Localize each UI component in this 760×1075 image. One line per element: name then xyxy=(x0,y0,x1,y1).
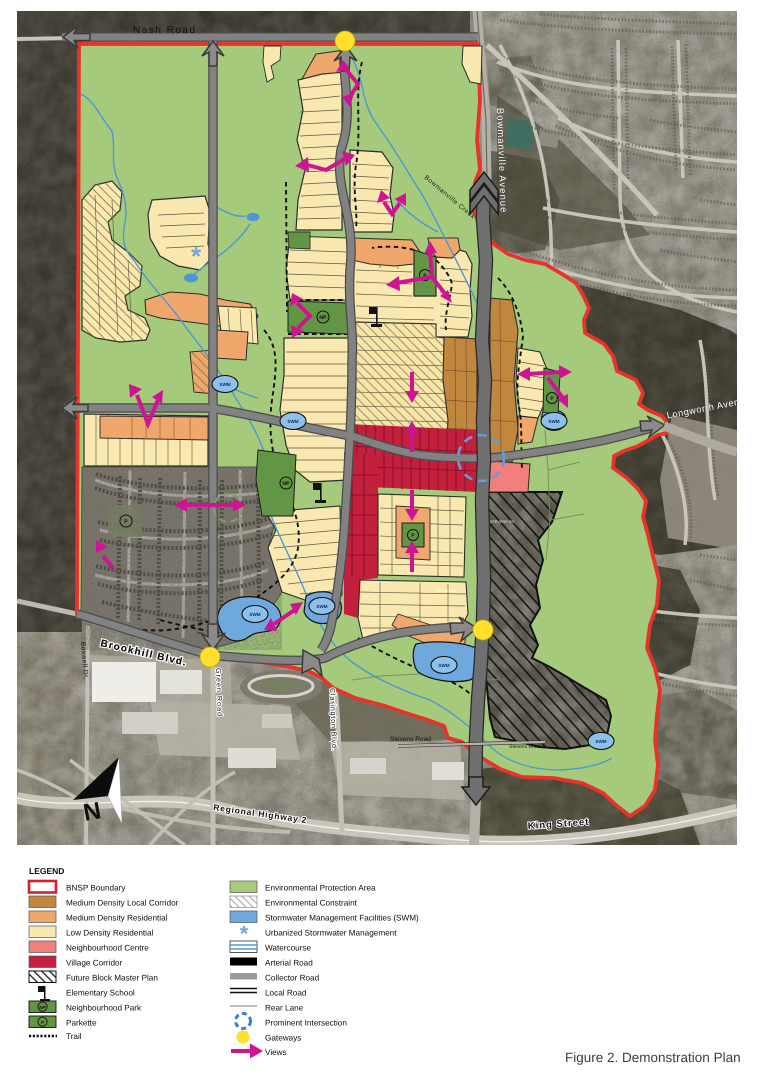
svg-text:Trail: Trail xyxy=(66,1032,82,1041)
svg-text:SWM: SWM xyxy=(287,419,298,424)
svg-text:NP: NP xyxy=(282,481,290,487)
svg-text:Stormwater Management Faciliti: Stormwater Management Facilities (SWM) xyxy=(265,914,419,923)
svg-text:Urbanized Stormwater Managemen: Urbanized Stormwater Management xyxy=(265,929,397,938)
svg-text:Neighbourhood Centre: Neighbourhood Centre xyxy=(66,944,149,953)
svg-text:P: P xyxy=(411,533,415,539)
svg-text:NP: NP xyxy=(39,1005,45,1010)
svg-text:Medium Density Local Corridor: Medium Density Local Corridor xyxy=(66,899,179,908)
svg-text:Arterial Road: Arterial Road xyxy=(265,959,313,968)
svg-text:Neighbourhood Park: Neighbourhood Park xyxy=(66,1004,142,1013)
svg-text:P: P xyxy=(41,1020,44,1025)
svg-text:SWM: SWM xyxy=(249,612,260,617)
svg-text:Environmental Constraint: Environmental Constraint xyxy=(265,899,358,908)
svg-text:Village Corridor: Village Corridor xyxy=(66,959,123,968)
svg-text:Views: Views xyxy=(265,1048,287,1057)
svg-text:Figure 2. Demonstration Plan: Figure 2. Demonstration Plan xyxy=(565,1050,741,1065)
svg-text:Environmental Protection Area: Environmental Protection Area xyxy=(265,884,376,893)
svg-text:STEVENS RD: STEVENS RD xyxy=(490,520,515,524)
svg-text:*: * xyxy=(191,241,202,271)
svg-text:Low Density Residential: Low Density Residential xyxy=(66,929,154,938)
svg-text:Prominent Intersection: Prominent Intersection xyxy=(265,1019,347,1028)
svg-text:Nash Road: Nash Road xyxy=(133,25,197,36)
svg-text:Collector Road: Collector Road xyxy=(265,974,320,983)
svg-text:Stevens Road: Stevens Road xyxy=(509,744,541,750)
svg-text:Medium Density Residential: Medium Density Residential xyxy=(66,914,168,923)
svg-text:Gateways: Gateways xyxy=(265,1034,301,1043)
svg-text:Parkette: Parkette xyxy=(66,1019,97,1028)
svg-text:Mearns Ct: Mearns Ct xyxy=(437,588,456,593)
svg-text:SWM: SWM xyxy=(548,419,559,424)
svg-text:P: P xyxy=(550,396,554,402)
svg-text:Watercourse: Watercourse xyxy=(265,944,312,953)
svg-text:Local Road: Local Road xyxy=(265,989,307,998)
svg-text:Green Road: Green Road xyxy=(214,668,225,717)
svg-text:BNSP Boundary: BNSP Boundary xyxy=(66,884,126,893)
svg-text:SWM: SWM xyxy=(595,739,606,744)
svg-text:SWM: SWM xyxy=(316,604,327,609)
svg-text:NP: NP xyxy=(319,315,327,321)
svg-text:SWM: SWM xyxy=(219,382,230,387)
svg-text:LEGEND: LEGEND xyxy=(29,866,64,876)
svg-text:Future Block Master Plan: Future Block Master Plan xyxy=(66,974,158,983)
svg-text:Stevens Road: Stevens Road xyxy=(390,736,431,743)
svg-text:Rear Lane: Rear Lane xyxy=(265,1004,304,1013)
svg-text:P: P xyxy=(124,519,128,525)
svg-text:Elementary School: Elementary School xyxy=(66,989,135,998)
svg-text:SWM: SWM xyxy=(438,663,449,668)
